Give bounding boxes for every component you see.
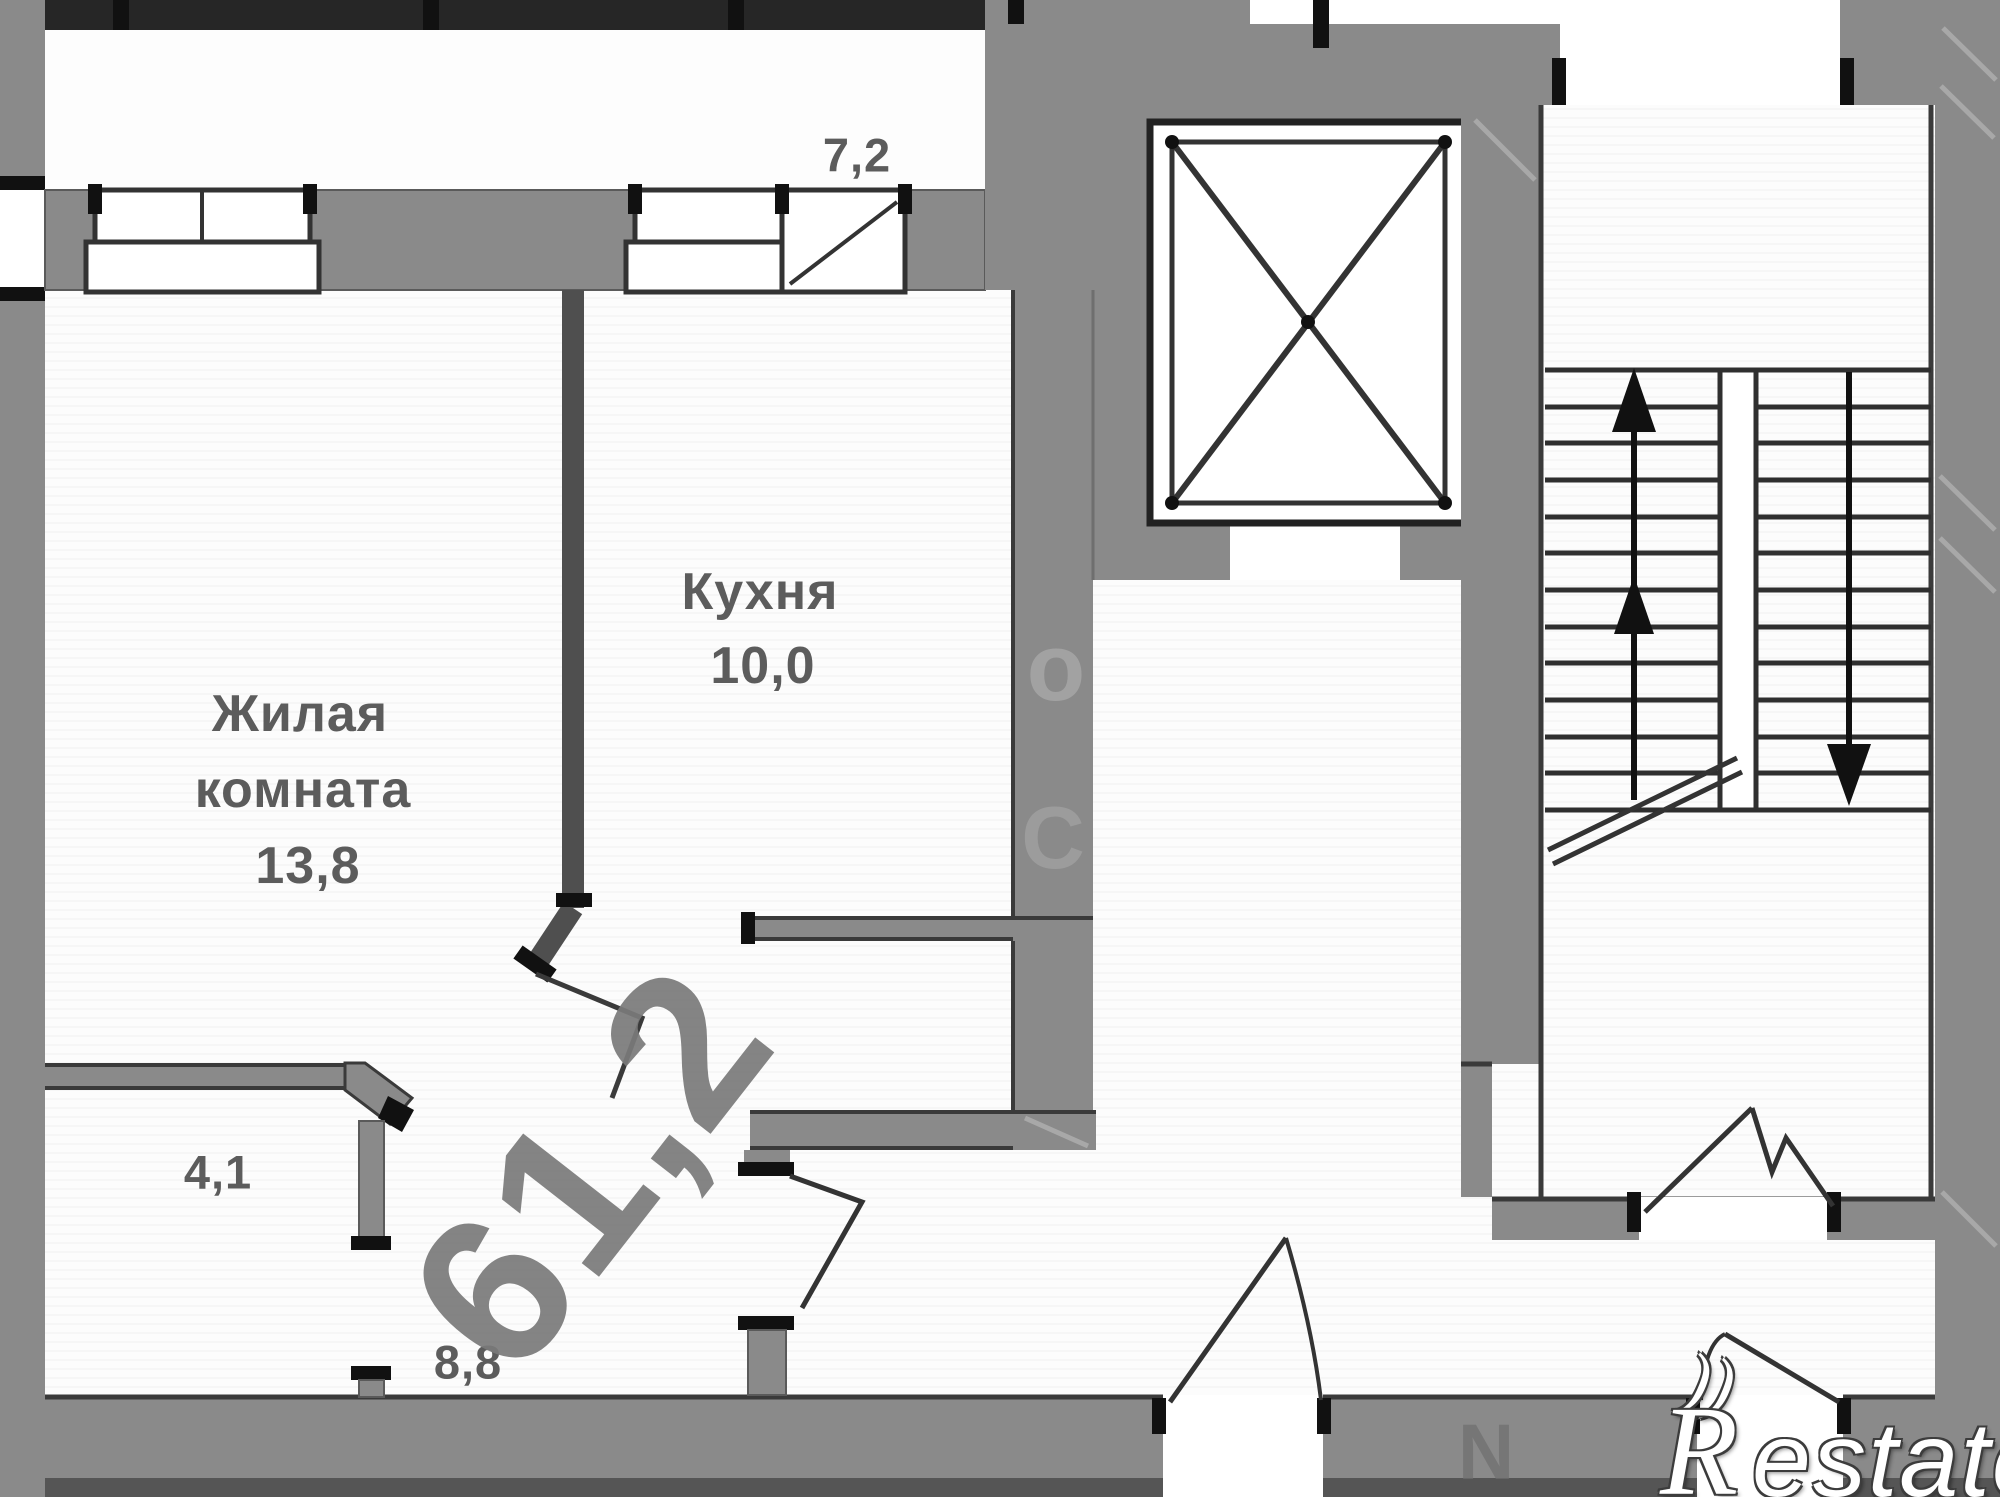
jamb-cap — [741, 912, 755, 944]
wall-above-kitchen — [985, 24, 1160, 290]
jamb-cap — [1627, 1192, 1641, 1232]
wall-right — [1935, 0, 2000, 1497]
restate-logo: )) R estate — [1660, 1368, 2000, 1497]
window-pier — [900, 190, 985, 290]
kitchen-name-label: Кухня — [682, 562, 839, 622]
floor-plan-canvas: 7,2 Кухня 10,0 Жилая комната 13,8 4,1 8,… — [0, 0, 2000, 1497]
elevator-center-dot — [1301, 315, 1315, 329]
living-room-name-line2: комната — [195, 760, 412, 820]
stair-break-line — [1553, 772, 1742, 864]
stair-exit-opening — [1560, 0, 1840, 105]
wall-watermark-letter-n: N — [1458, 1407, 1514, 1497]
stair-up-arrow-icon — [1612, 368, 1656, 432]
wall-watermark-letter-c: С — [1021, 787, 1085, 889]
dimension-tick — [1313, 0, 1329, 48]
stair-flight-divider — [1720, 370, 1756, 810]
living-room-bottom-wall — [45, 1063, 345, 1090]
jamb-cap — [1152, 1398, 1166, 1434]
window-pier — [310, 190, 635, 290]
living-room-name-line1: Жилая — [212, 684, 388, 744]
stairwell-left-wall — [1461, 105, 1541, 1064]
elevator-corner-dot — [1438, 135, 1452, 149]
landing-door-opening — [1639, 1197, 1827, 1240]
corridor-door-leaf — [790, 1176, 862, 1308]
corridor-top-wall — [750, 1110, 1096, 1150]
kitchen-area-label: 10,0 — [710, 636, 815, 696]
jamb-cap — [1552, 58, 1566, 105]
jamb-cap — [628, 184, 642, 214]
stairwell-left-wall-lower — [1461, 1064, 1492, 1197]
living-room-area-label: 13,8 — [255, 836, 360, 896]
jamb-cap — [1317, 1398, 1331, 1434]
elevator-bottom-wall — [1150, 523, 1230, 580]
door-leaf — [1170, 1238, 1286, 1402]
landing-door-leaf — [1645, 1108, 1752, 1212]
wall-watermark-letter-o: о — [1027, 613, 1086, 723]
elevator-corner-dot — [1165, 135, 1179, 149]
door-swing-arc — [1286, 1238, 1321, 1400]
balcony-area-label: 7,2 — [823, 128, 891, 183]
corridor-door-wall-stub — [748, 1330, 786, 1395]
jamb-cap — [0, 287, 45, 301]
elevator-corner-dot — [1165, 496, 1179, 510]
door-opening-bottom-left — [1163, 1395, 1323, 1497]
stair-up-arrow-icon — [1614, 576, 1654, 634]
floor-plan-drawing — [0, 0, 2000, 1497]
jamb-cap — [351, 1366, 391, 1380]
wall-left-opening — [0, 190, 45, 287]
elevator-corner-dot — [1438, 496, 1452, 510]
elevator-door-opening — [1230, 523, 1400, 580]
landing-door-leaf — [1752, 1108, 1833, 1206]
jamb-cap — [0, 176, 45, 190]
staircase — [1461, 105, 1935, 1240]
bathroom-wall-stub — [359, 1380, 384, 1397]
jamb-cap — [775, 184, 789, 214]
elevator-bottom-wall — [1400, 523, 1467, 580]
bathroom-wall — [359, 1121, 384, 1242]
wall-top-white-strip — [1250, 0, 1560, 24]
jamb-cap — [1840, 58, 1854, 105]
core-walls — [985, 24, 1160, 1150]
jamb-cap — [738, 1316, 794, 1330]
living-room-window-sill — [86, 242, 319, 292]
kitchen-window-sill — [626, 242, 791, 292]
jamb-cap — [303, 184, 317, 214]
partition-diagonal-jamb — [536, 908, 573, 964]
jamb-cap — [88, 184, 102, 214]
bathroom-area-label: 4,1 — [184, 1145, 252, 1200]
restate-logo-initial: R — [1660, 1378, 1738, 1497]
wall-top-balcony-band — [45, 0, 985, 30]
restate-logo-text: estate — [1752, 1400, 2000, 1497]
kitchen-window — [635, 190, 782, 242]
jamb-cap — [898, 184, 912, 214]
